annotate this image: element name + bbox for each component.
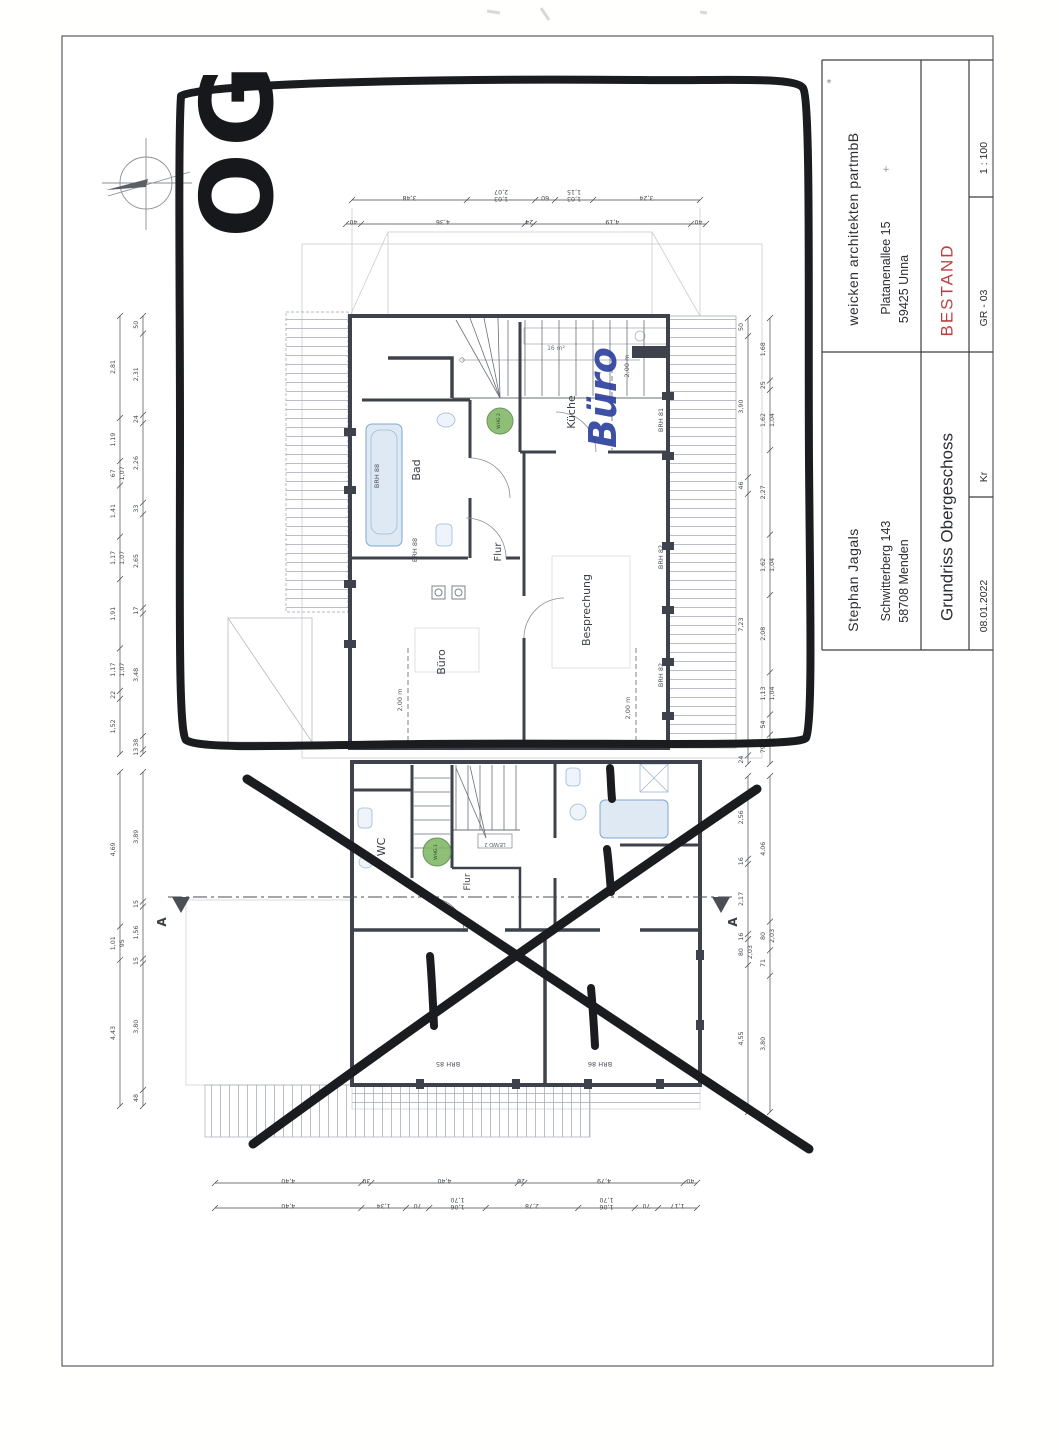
scan-artifacts [487,8,707,20]
dimension-label: 3,48 [133,668,140,682]
room-label-kueche: Küche [565,395,578,429]
dimension-label: 2,81 [110,360,117,374]
dimension-label: 40 [686,1177,694,1184]
dimension-label: 33 [133,505,140,513]
dimension-label: 3,89 [133,830,140,844]
dimension-label: 2,03 [747,945,754,959]
dimension-label: 1,52 [110,719,117,733]
hand-dash [610,768,612,799]
room-relabel-handwritten: Büro [581,347,625,448]
floor-plan-drawing: 3,482,071,03601,151,033,24404,36244,1940… [0,0,1059,1450]
dimension-label: 1,68 [760,342,767,356]
dimension-label: 4,40 [281,1202,295,1209]
dimension-label: 1,17 [110,551,117,565]
dimension-label: 3,90 [738,400,745,414]
dimension-label: 40 [694,218,702,225]
dimension-label: 1,07 [119,466,126,480]
dimension-label: 4,40 [438,1177,452,1184]
dimension-label: 1,03 [567,195,581,202]
dimension-label: 1,56 [133,925,140,939]
dimension-label: 71 [760,959,767,967]
dimension-label: 1,04 [769,686,776,700]
author-initials: Kr [979,472,990,483]
client-city: 58708 Menden [898,539,911,622]
dimension-label: 1,62 [760,558,767,572]
hand-mark: * [827,78,832,89]
drawing-date: 08.01.2022 [979,580,990,633]
toilet [436,524,452,546]
sill-label: BRH 88 [373,464,381,488]
dimension-label: 4,55 [738,1031,745,1045]
room-label-buero: Büro [435,649,448,675]
fixture-label: LE/WD 2 [484,841,505,847]
scale-value: 1 : 100 [979,142,990,174]
roof-hatch-left [286,312,348,612]
architect-city: 59425 Unna [898,255,911,323]
floor-label-handwritten: OG [179,59,296,238]
dimension-label: 2,26 [133,456,140,470]
dimension-label: 15 [133,957,140,965]
dimension-label: 3,80 [760,1037,767,1051]
dimension-label: 1,04 [769,413,776,427]
dimension-label: 7,23 [738,618,745,632]
room-label-flur-og: Flur [493,542,504,562]
dimension-label: 2,08 [760,627,767,641]
dimension-label: 1,13 [760,686,767,700]
dimension-label: 2,03 [769,929,776,943]
dimension-label: 4,40 [281,1177,295,1184]
wc-toilet [358,808,372,828]
washbasin-lower [570,804,586,820]
hand-dash [430,956,434,1026]
dimension-label: 38 [133,739,140,747]
dimension-label: 16 [738,933,745,941]
whg-marker-label: WHG 1 [433,844,439,860]
dimension-label: 1,91 [110,607,117,621]
dimension-label: 1,62 [760,413,767,427]
dimension-label: 3,48 [402,194,416,201]
client-street: Schwitterberg 143 [880,521,893,622]
dimension-label: 4,43 [110,1026,117,1040]
dimension-label: 20 [517,1177,525,1184]
height-line-label: 2,00 m [624,697,632,720]
area-label: 16 m² [547,345,565,352]
dimension-label: 1,03 [494,195,508,202]
hand-mark: + [882,165,890,175]
dimension-label: 3,80 [133,1020,140,1034]
dimension-label: 4,36 [436,218,450,225]
dimension-label: 1,06 [600,1203,614,1210]
dimension-label: 2,07 [494,188,508,195]
dimension-label: 54 [760,721,767,729]
dimension-label: 80 [738,948,745,956]
dimension-label: 2,65 [133,554,140,568]
sill-label: BRH 88 [411,538,419,562]
dimension-label: 1,41 [110,504,117,518]
section-marker-a-left: A [155,917,169,927]
dimension-label: 30 [362,1177,370,1184]
dimension-label: 24 [738,756,745,764]
dimension-label: 1,15 [567,188,581,195]
status-badge: BESTAND [939,243,956,336]
dimension-label: 40 [350,218,358,225]
dimension-label: 46 [738,481,745,489]
drawing-title: Grundriss Obergeschoss [939,433,956,621]
dimension-label: 4,79 [597,1177,611,1184]
dimension-label: 16 [738,857,745,865]
architect-name: weicken architekten partmbB [846,132,860,325]
dimension-label: 1,17 [110,663,117,677]
architect-street: Platanenallee 15 [880,221,893,314]
dimension-label: 4,69 [110,842,117,856]
dimension-label: 1,06 [450,1203,464,1210]
client-name: Stephan Jagals [846,528,860,632]
dimension-label: 1,01 [110,936,117,950]
room-label-besprechung: Besprechung [580,574,593,646]
dimension-label: 67 [110,469,117,477]
dimension-label: 4,19 [605,218,619,225]
roof-hatch-right [668,316,736,748]
dimension-label: 13 [133,748,140,756]
dimension-label: 25 [760,381,767,389]
room-label-wc: WC [375,837,388,856]
dimension-label: 1,34 [377,1202,391,1209]
whg-marker-label: WHG 2 [496,413,502,429]
dimension-label: 1,04 [769,558,776,572]
sill-label: BRH 81 [657,408,665,432]
dimension-label: 50 [738,323,745,331]
scanned-sheet: 3,482,071,03601,151,033,24404,36244,1940… [0,0,1059,1450]
dimension-label: 2,31 [133,367,140,381]
dimension-label: 4,06 [760,842,767,856]
dimension-label: 15 [133,900,140,908]
dimension-label: 2,17 [738,892,745,906]
sill-label: BRH 86 [588,1060,612,1068]
dimension-label: 50 [133,321,140,329]
section-marker-a-right: A [726,917,740,927]
dimension-label: 1,07 [119,551,126,565]
dimension-label: 95 [119,939,126,947]
sill-label: BRH 82 [657,545,665,569]
dimension-label: 1,70 [600,1196,614,1203]
dimension-label: 1,70 [450,1196,464,1203]
dimension-label: 24 [133,415,140,423]
bathtub-lower [600,800,668,838]
sill-label: BRH 82 [657,663,665,687]
dimension-label: 17 [133,607,140,615]
dimension-label: 2,27 [760,485,767,499]
dimension-label: 2,78 [525,1202,539,1209]
dimension-label: 3,24 [639,194,653,201]
dimension-label: 80 [760,932,767,940]
terrace-hatch-band [352,1085,700,1109]
room-label-flur-lower: Flur [463,873,473,890]
toilet-lower [566,768,580,786]
washbasin [437,413,455,427]
sheet-number: GR - 03 [979,290,990,327]
hand-dash [591,988,595,1046]
hand-dash [607,849,611,892]
height-line-label: 2,00 m [396,689,404,712]
dimension-label: 48 [133,1094,140,1102]
dimension-label: 24 [525,218,533,225]
dimension-label: 1,17 [671,1202,685,1209]
dimension-label: 70 [414,1202,422,1209]
sill-label: BRH 85 [436,1060,460,1068]
room-label-bad: Bad [410,459,423,480]
dimension-label: 2,56 [738,810,745,824]
dimension-label: 1,19 [110,433,117,447]
dimension-label: 1,07 [119,663,126,677]
dimension-label: 22 [110,691,117,699]
dimension-label: 70 [642,1202,650,1209]
dimension-label: 60 [541,194,549,201]
